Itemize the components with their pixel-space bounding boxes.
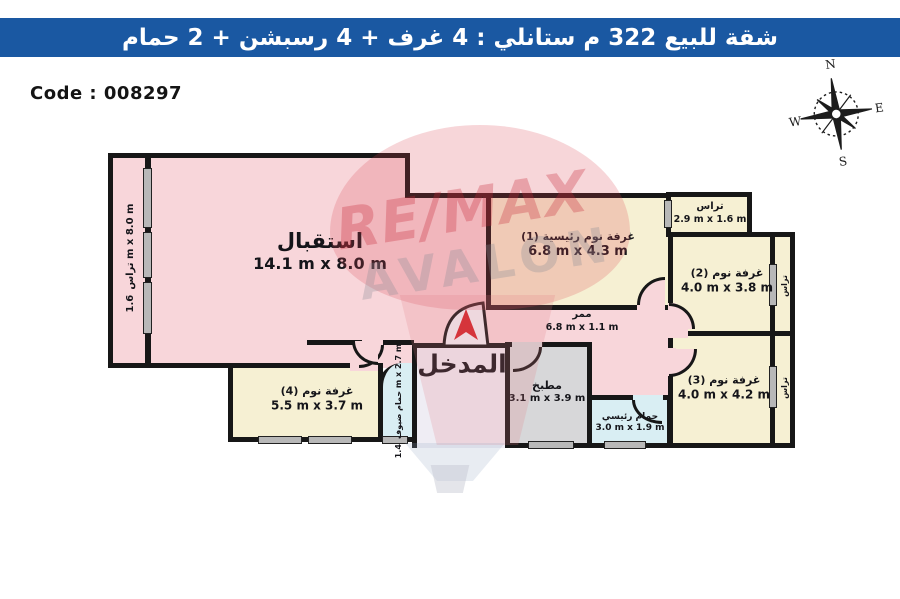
wall [405,153,410,198]
label-terrace-top: تراس 2.9 m x 1.6 m [674,201,747,225]
window [143,168,152,228]
label-master-bath: حمام رئيسي 3.0 m x 1.9 m [596,412,665,435]
label-bedroom4: غرفة نوم (4) 5.5 m x 3.7 m [271,385,363,414]
label-terrace-left: تراس 1.6 m x 8.0 m [118,204,138,313]
entrance-arrow-icon [437,300,495,348]
label-kitchen: مطبخ 3.1 m x 3.9 m [509,379,586,405]
label-guest-bath: حمام ضيوف 1.4 m x 2.7 m [386,344,406,459]
door-gap [668,329,688,338]
label-reception: استقبال 14.1 m x 8.0 m [253,228,387,274]
floor-plan: استقبال 14.1 m x 8.0 m تراس 1.6 m x 8.0 … [0,0,900,599]
window [528,441,574,449]
wall [108,153,410,158]
hall-right-fill [590,345,672,395]
wall [108,153,113,368]
window [664,200,672,228]
label-corridor: ممر 6.8 m x 1.1 m [546,309,619,333]
window [143,282,152,334]
label-master-bedroom: غرفة نوم رئيسية (1) 6.8 m x 4.3 m [521,230,635,260]
label-terrace-right2: تراس [772,275,792,297]
label-bedroom2: غرفة نوم (2) 4.0 m x 3.8 m [681,267,773,296]
window [604,441,646,449]
window [143,232,152,278]
window [308,436,352,444]
label-terrace-right3: تراس [772,377,792,399]
wall [108,363,232,368]
label-bedroom3: غرفة نوم (3) 4.0 m x 4.2 m [678,374,770,403]
label-entrance: المدخل [417,348,507,379]
window [258,436,302,444]
wall [405,193,491,198]
